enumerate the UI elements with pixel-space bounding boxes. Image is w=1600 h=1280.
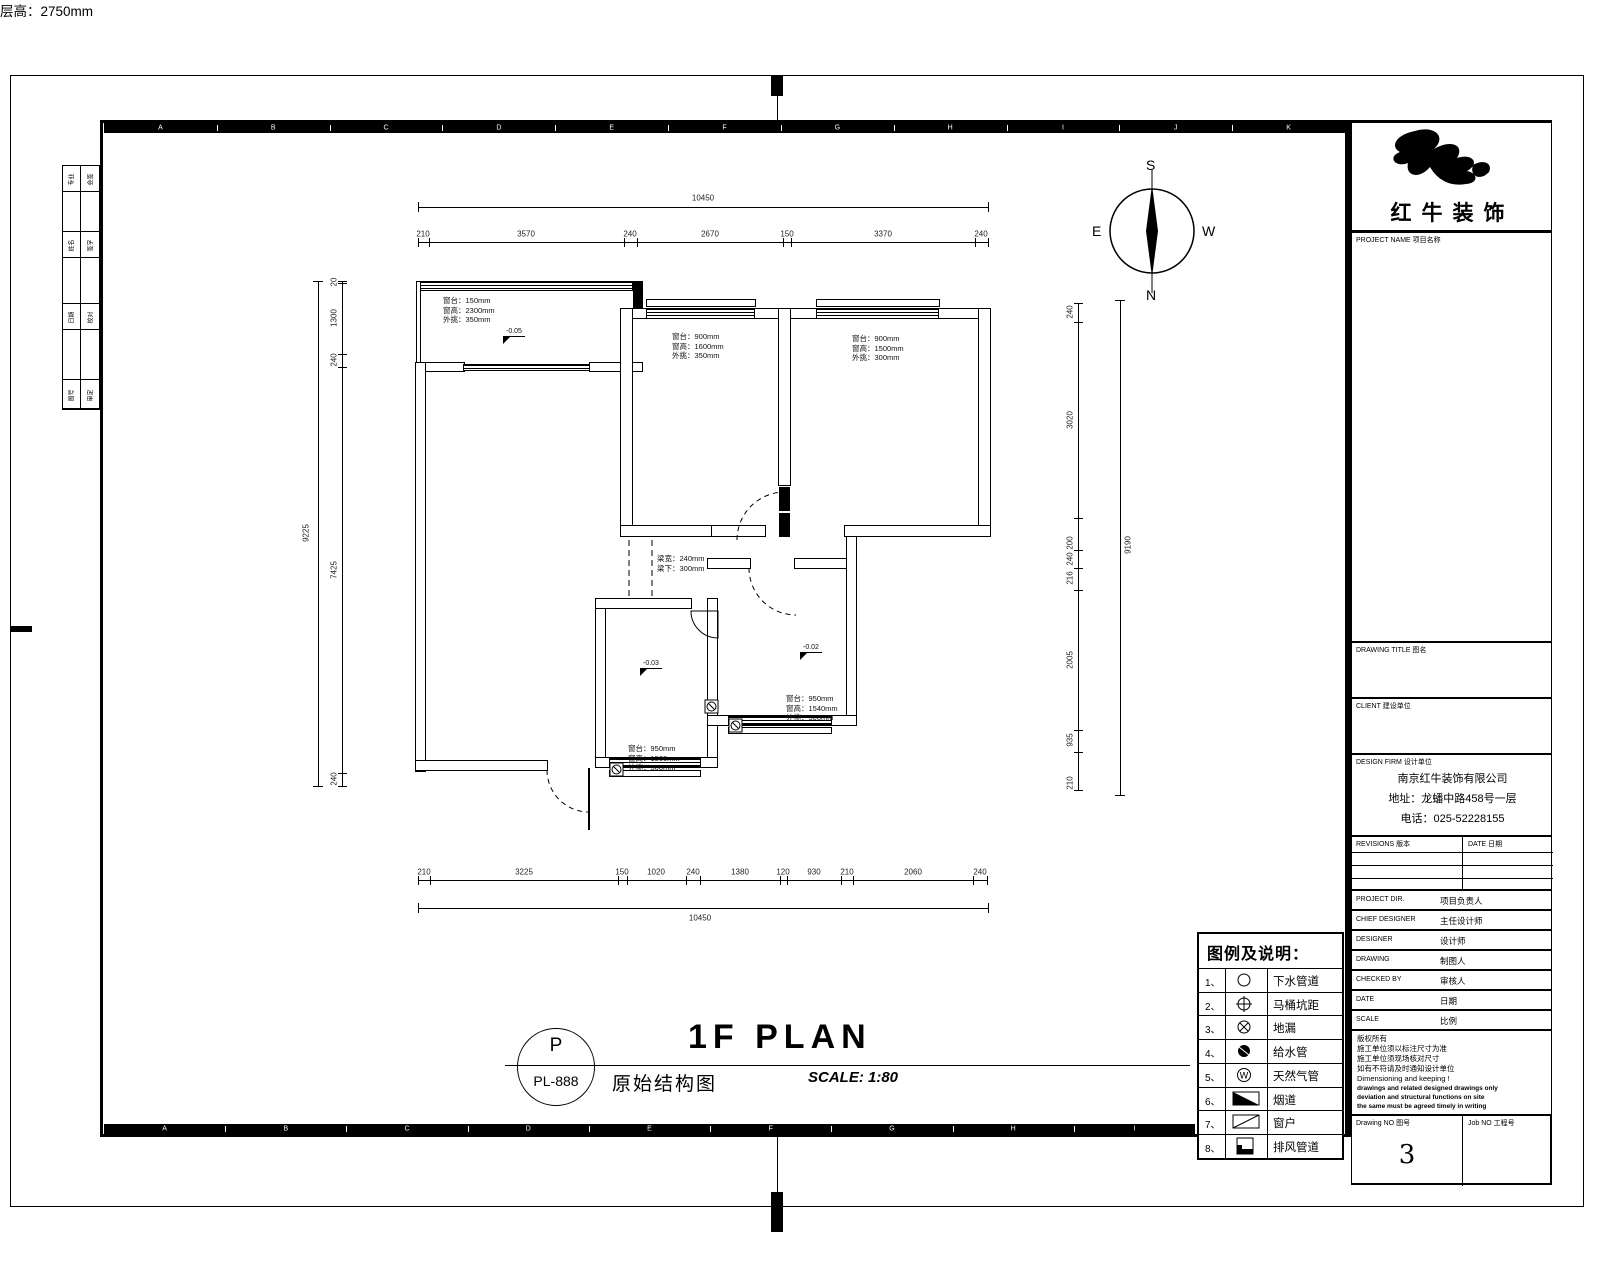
entry-door-leaf (588, 768, 590, 830)
dim-left-label: 240 (330, 772, 339, 785)
entry-door-swing (547, 770, 589, 812)
dim-left-label: 7425 (330, 561, 339, 579)
legend-row: 6、 烟道 (1199, 1087, 1342, 1111)
dim-right-tick (1074, 322, 1083, 323)
living-bedroom-wall (620, 308, 633, 537)
legend-divider (1267, 969, 1268, 992)
compass-north: N (1146, 287, 1156, 303)
drawing-sheet: ABCDEFGHIJK ABCDEFGHI 专业 会签姓名 签字日期 校对图号 … (0, 0, 1600, 1280)
drawing-title-label: DRAWING TITLE 图名 (1356, 645, 1426, 655)
footer-rule (505, 1065, 1190, 1066)
door-panel (779, 513, 790, 537)
note-line-bold: deviation and structural functions on si… (1357, 1093, 1498, 1102)
dim-bottom-line (418, 880, 987, 881)
dim-left-total: 9225 (302, 524, 311, 542)
bedroom-divider-wall (778, 308, 791, 486)
project-name-label: PROJECT NAME 项目名称 (1356, 235, 1441, 245)
legend-row: 1、 下水管道 (1199, 968, 1342, 992)
personnel-cn: 设计师 (1440, 935, 1466, 947)
balcony-notes: 窗台：150mm窗高：2300mm外挑：350mm (443, 296, 495, 325)
circle-m-icon: W (1231, 1064, 1261, 1086)
personnel-row: CHECKED BY 审核人 (1351, 970, 1552, 990)
dim-bottom-total: 10450 (689, 914, 711, 923)
legend-label: 窗户 (1273, 1115, 1296, 1131)
tick (313, 281, 323, 282)
compass-west: W (1202, 223, 1215, 239)
dim-bottom-label: 1380 (731, 868, 749, 877)
balcony-window (420, 281, 633, 291)
dim-top-label: 240 (623, 230, 636, 239)
legend-divider (1225, 1135, 1226, 1158)
tick (1115, 300, 1125, 301)
personnel-row: DESIGNER 设计师 (1351, 930, 1552, 950)
dim-bottom-label: 120 (776, 868, 789, 877)
legend-divider (1267, 1040, 1268, 1063)
job-no-label: Job NO 工程号 (1468, 1118, 1515, 1128)
personnel-cn: 日期 (1440, 995, 1457, 1007)
kitchen-left-wall (595, 598, 606, 768)
personnel-rows: PROJECT DIR. 项目负责人CHIEF DESIGNER 主任设计师DE… (1351, 890, 1552, 1030)
bottom-wall (415, 760, 548, 771)
dim-right-total-line (1120, 300, 1121, 795)
dim-bottom-label: 240 (686, 868, 699, 877)
dim-bottom-tick (418, 876, 419, 885)
brand-name: 红牛装饰 (1352, 197, 1553, 227)
dim-top-total-line (418, 207, 988, 208)
note-line: 窗高：2300mm (443, 306, 495, 316)
drawing-no-box: Drawing NO 图号 3 Job NO 工程号 (1351, 1115, 1552, 1185)
legend-num: 2、 (1205, 998, 1221, 1013)
legend-row: 2、 马桶坑距 (1199, 992, 1342, 1016)
legend-row: 8、 排风管道 (1199, 1134, 1342, 1158)
dim-right-tick (1074, 730, 1083, 731)
project-name-box: PROJECT NAME 项目名称 (1351, 232, 1552, 642)
dim-bottom-tick (618, 876, 619, 885)
rect-corner-icon (1231, 1135, 1261, 1157)
dim-right-label: 216 (1066, 571, 1075, 584)
dim-bottom-tick (973, 876, 974, 885)
legend-num: 7、 (1205, 1116, 1221, 1131)
drawing-no-value: 3 (1352, 1140, 1462, 1170)
revisions-box: REVISIONS 版本 DATE 日期 (1351, 836, 1552, 890)
tick (988, 903, 989, 913)
note-line: 外挑：350mm (672, 351, 724, 361)
legend-divider (1225, 1111, 1226, 1134)
client-label: CLIENT 建设单位 (1356, 701, 1411, 711)
circle-x-icon (1231, 1016, 1261, 1038)
dim-top-total: 10450 (692, 194, 714, 203)
dim-top-label: 2670 (701, 230, 719, 239)
legend-rows: 1、 下水管道2、 马桶坑距3、 地漏4、 给水管5、 W 天然气管6、 烟道7… (1199, 968, 1342, 1158)
dim-top-tick (988, 238, 989, 247)
legend-label: 排风管道 (1273, 1139, 1319, 1155)
note-line: 窗台：150mm (443, 296, 495, 306)
drawing-no-divider (1462, 1116, 1463, 1186)
note-line: 窗台：900mm (672, 332, 724, 342)
personnel-en: PROJECT DIR. (1356, 896, 1405, 903)
legend-divider (1267, 1135, 1268, 1158)
legend-label: 地漏 (1273, 1020, 1296, 1036)
right-outer-wall (978, 308, 991, 537)
bath-right-wall (846, 535, 857, 726)
note-line-bold: drawings and related designed drawings o… (1357, 1084, 1498, 1093)
door-panel (779, 487, 790, 511)
dim-right-tick (1074, 518, 1083, 519)
note-line: 梁宽：240mm (657, 554, 705, 564)
personnel-cn: 比例 (1440, 1015, 1457, 1027)
personnel-row: CHIEF DESIGNER 主任设计师 (1351, 910, 1552, 930)
window-ledge (646, 299, 756, 307)
notes-text: 版权所有施工单位须以标注尺寸为准施工单位须现场核对尺寸如有不符请及时通知设计单位… (1357, 1034, 1455, 1084)
note-line: 版权所有 (1357, 1034, 1455, 1044)
dim-top-label: 150 (780, 230, 793, 239)
dim-right-tick (1074, 550, 1083, 551)
personnel-en: DATE (1356, 996, 1374, 1003)
revisions-label: REVISIONS 版本 (1356, 839, 1410, 849)
note-line: 窗高：1500mm (852, 344, 904, 354)
client-box: CLIENT 建设单位 (1351, 698, 1552, 754)
beam-note: 梁宽：240mm梁下：300mm (657, 554, 705, 573)
dim-bottom-tick (780, 876, 781, 885)
personnel-row: SCALE 比例 (1351, 1010, 1552, 1030)
legend-label: 天然气管 (1273, 1068, 1319, 1084)
legend-num: 6、 (1205, 1093, 1221, 1108)
dim-top-tick (783, 238, 784, 247)
dim-right-label: 210 (1066, 776, 1075, 789)
dim-left-tick (338, 354, 347, 355)
compass-rose-icon (1100, 165, 1204, 297)
note-line: 施工单位须以标注尺寸为准 (1357, 1044, 1455, 1054)
legend-divider (1225, 1088, 1226, 1111)
legend-row: 5、 W 天然气管 (1199, 1063, 1342, 1087)
personnel-en: CHIEF DESIGNER (1356, 916, 1416, 923)
balcony-level: -0.05 (503, 328, 525, 337)
kitchen-notes: 窗台：950mm窗高：1500mm外挑：300mm (628, 744, 680, 773)
dim-right-line (1078, 303, 1079, 790)
note-line: 外挑：300mm (786, 713, 838, 723)
column (633, 281, 643, 309)
note-line: Dimensioning and keeping ! (1357, 1074, 1455, 1084)
dim-bottom-tick (430, 876, 431, 885)
kitchen-right-wall (707, 598, 718, 768)
dim-right-tick (1074, 303, 1083, 304)
dim-bottom-label: 210 (840, 868, 853, 877)
design-firm-label: DESIGN FIRM 设计单位 (1356, 757, 1432, 767)
dim-left-label: 1300 (330, 309, 339, 327)
tick (418, 202, 419, 212)
window-ledge (728, 727, 832, 734)
personnel-row: DATE 日期 (1351, 990, 1552, 1010)
bathroom-notes: 窗台：950mm窗高：1540mm外挑：300mm (786, 694, 838, 723)
dim-top-line (418, 242, 988, 243)
note-line: 窗高：1540mm (786, 704, 838, 714)
legend-row: 4、 给水管 (1199, 1039, 1342, 1063)
revisions-row3 (1352, 878, 1553, 879)
bath-top-wall (707, 558, 751, 569)
wall (589, 362, 643, 372)
bath-door-swing (749, 568, 796, 615)
left-outer-wall (415, 362, 426, 772)
dim-bottom-tick (841, 876, 842, 885)
note-line: 施工单位须现场核对尺寸 (1357, 1054, 1455, 1064)
note-line: 窗高：1500mm (628, 754, 680, 764)
dim-top-tick (975, 238, 976, 247)
dim-right-label: 200 (1066, 536, 1075, 549)
balcony-slider-window (463, 364, 591, 371)
legend-num: 3、 (1205, 1021, 1221, 1036)
legend-title: 图例及说明： (1207, 940, 1309, 964)
bedroom-right-window (816, 308, 940, 319)
legend-row: 3、 地漏 (1199, 1015, 1342, 1039)
firm-line: 地址：龙蟠中路458号一层 (1352, 789, 1553, 809)
dim-left-tick (338, 367, 347, 368)
bedroom-mid-window (646, 308, 756, 319)
legend-divider (1267, 1111, 1268, 1134)
note-line: 外挑：300mm (852, 353, 904, 363)
personnel-cn: 项目负责人 (1440, 895, 1483, 907)
note-line: 窗台：950mm (786, 694, 838, 704)
bedroom-bottom-wall (844, 525, 991, 537)
svg-text:W: W (1240, 1071, 1249, 1081)
note-line: 梁下：300mm (657, 564, 705, 574)
circle-cross-icon (1231, 993, 1261, 1015)
dim-right-tick (1074, 590, 1083, 591)
legend-divider (1225, 1016, 1226, 1039)
bubble-top-text: P (518, 1035, 594, 1057)
note-line-bold: the same must be agreed timely in writin… (1357, 1102, 1498, 1111)
dim-bottom-label: 240 (973, 868, 986, 877)
notes-text-bold: drawings and related designed drawings o… (1357, 1084, 1498, 1111)
logo-box: 红牛装饰 (1351, 122, 1552, 232)
legend-table: 图例及说明： 1、 下水管道2、 马桶坑距3、 地漏4、 给水管5、 W 天然气… (1197, 932, 1344, 1160)
living-height-note: 层高：2750mm (0, 0, 1600, 20)
notes-box: 版权所有施工单位须以标注尺寸为准施工单位须现场核对尺寸如有不符请及时通知设计单位… (1351, 1030, 1552, 1115)
dim-bottom-label: 2060 (904, 868, 922, 877)
revisions-col-divider (1462, 837, 1463, 891)
plan-title-cn: 原始结构图 (612, 1069, 717, 1096)
personnel-cn: 审核人 (1440, 975, 1466, 987)
tick (1115, 795, 1125, 796)
note-line: 外挑：350mm (443, 315, 495, 325)
tick (988, 202, 989, 212)
dim-right-label: 240 (1066, 552, 1075, 565)
legend-label: 马桶坑距 (1273, 997, 1319, 1013)
dim-bottom-label: 210 (417, 868, 430, 877)
dim-bottom-tick (787, 876, 788, 885)
legend-label: 烟道 (1273, 1092, 1296, 1108)
bubble-bottom-text: PL-888 (518, 1073, 594, 1089)
drawing-no-label: Drawing NO 图号 (1356, 1118, 1410, 1128)
dim-right-label: 3020 (1066, 411, 1075, 429)
legend-label: 下水管道 (1273, 973, 1319, 989)
revisions-row1 (1352, 852, 1553, 853)
note-line: 窗高：1600mm (672, 342, 724, 352)
legend-num: 5、 (1205, 1069, 1221, 1084)
compass-south: S (1146, 157, 1155, 173)
dim-right-label: 935 (1066, 733, 1075, 746)
legend-num: 4、 (1205, 1045, 1221, 1060)
personnel-en: DRAWING (1356, 956, 1390, 963)
dim-bottom-total-line (418, 908, 988, 909)
dim-top-label: 3370 (874, 230, 892, 239)
dim-right-label: 2005 (1066, 651, 1075, 669)
revisions-date-label: DATE 日期 (1468, 839, 1502, 849)
plan-scale: SCALE: 1:80 (808, 1069, 898, 1086)
legend-divider (1267, 1064, 1268, 1087)
note-line: 外挑：300mm (628, 763, 680, 773)
dim-bottom-label: 150 (615, 868, 628, 877)
legend-num: 8、 (1205, 1140, 1221, 1155)
rect-tri-icon (1231, 1088, 1261, 1110)
dim-bottom-tick (700, 876, 701, 885)
dim-left-label: 240 (330, 353, 339, 366)
legend-label: 给水管 (1273, 1044, 1308, 1060)
hall-wall (711, 525, 766, 537)
tick (313, 786, 323, 787)
kitchen-level: -0.03 (640, 660, 662, 669)
circle-fill-icon (1231, 1040, 1261, 1062)
personnel-en: SCALE (1356, 1016, 1379, 1023)
dim-bottom-label: 930 (807, 868, 820, 877)
personnel-cn: 主任设计师 (1440, 915, 1483, 927)
bathroom-level: -0.02 (800, 644, 822, 653)
kitchen-top-wall (595, 598, 692, 609)
dim-top-label: 210 (416, 230, 429, 239)
dim-bottom-tick (686, 876, 687, 885)
dim-right-tick (1074, 568, 1083, 569)
dim-right-tick (1074, 790, 1083, 791)
note-line: 窗台：950mm (628, 744, 680, 754)
circle-icon (1231, 969, 1261, 991)
dim-left-total-line (318, 281, 319, 786)
personnel-en: DESIGNER (1356, 936, 1393, 943)
legend-divider (1225, 1040, 1226, 1063)
dim-top-tick (637, 238, 638, 247)
sheet-number-bubble: P PL-888 (517, 1028, 595, 1106)
legend-num: 1、 (1205, 974, 1221, 989)
dim-left-line (342, 281, 343, 786)
dim-right-label: 240 (1066, 305, 1075, 318)
dim-bottom-label: 1020 (647, 868, 665, 877)
plan-title-en: 1F PLAN (688, 1018, 872, 1057)
dim-right-total: 9190 (1124, 536, 1133, 554)
firm-line: 南京红牛装饰有限公司 (1352, 769, 1553, 789)
dim-top-tick (429, 238, 430, 247)
note-line: 窗台：900mm (852, 334, 904, 344)
drawing-title-box: DRAWING TITLE 图名 (1351, 642, 1552, 698)
personnel-row: DRAWING 制图人 (1351, 950, 1552, 970)
dim-left-tick (338, 283, 347, 284)
dim-top-tick (418, 238, 419, 247)
dim-bottom-label: 3225 (515, 868, 533, 877)
dim-left-tick (338, 773, 347, 774)
compass-east: E (1092, 223, 1101, 239)
dim-right-tick (1074, 752, 1083, 753)
title-block: 红牛装饰 PROJECT NAME 项目名称 DRAWING TITLE 图名 … (1351, 122, 1552, 1185)
compass: S N E W (1100, 165, 1204, 297)
legend-divider (1267, 1016, 1268, 1039)
personnel-en: CHECKED BY (1356, 976, 1402, 983)
revisions-row2 (1352, 865, 1553, 866)
personnel-row: PROJECT DIR. 项目负责人 (1351, 890, 1552, 910)
legend-divider (1267, 993, 1268, 1016)
dim-left-label: 20 (330, 278, 339, 287)
legend-divider (1225, 969, 1226, 992)
dim-top-label: 3570 (517, 230, 535, 239)
bedroom-mid-notes: 窗台：900mm窗高：1600mm外挑：350mm (672, 332, 724, 361)
legend-divider (1267, 1088, 1268, 1111)
dim-top-label: 240 (974, 230, 987, 239)
design-firm-lines: 南京红牛装饰有限公司地址：龙蟠中路458号一层电话：025-52228155 (1352, 769, 1553, 829)
design-firm-box: DESIGN FIRM 设计单位 南京红牛装饰有限公司地址：龙蟠中路458号一层… (1351, 754, 1552, 836)
brand-logo-icon (1377, 125, 1527, 187)
dim-left-tick (338, 786, 347, 787)
legend-divider (1225, 1064, 1226, 1087)
legend-divider (1225, 993, 1226, 1016)
dim-top-tick (624, 238, 625, 247)
balcony-left-wall (416, 281, 421, 371)
bedroom-right-notes: 窗台：900mm窗高：1500mm外挑：300mm (852, 334, 904, 363)
rect-diag-icon (1231, 1111, 1261, 1133)
legend-row: 7、 窗户 (1199, 1110, 1342, 1134)
note-line: 如有不符请及时通知设计单位 (1357, 1064, 1455, 1074)
hall-wall (620, 525, 713, 537)
dim-bottom-tick (987, 876, 988, 885)
personnel-cn: 制图人 (1440, 955, 1466, 967)
dim-top-tick (791, 238, 792, 247)
dim-bottom-tick (853, 876, 854, 885)
dim-bottom-tick (627, 876, 628, 885)
window-ledge (816, 299, 940, 307)
firm-line: 电话：025-52228155 (1352, 809, 1553, 829)
tick (418, 903, 419, 913)
dim-left-tick (338, 281, 347, 282)
